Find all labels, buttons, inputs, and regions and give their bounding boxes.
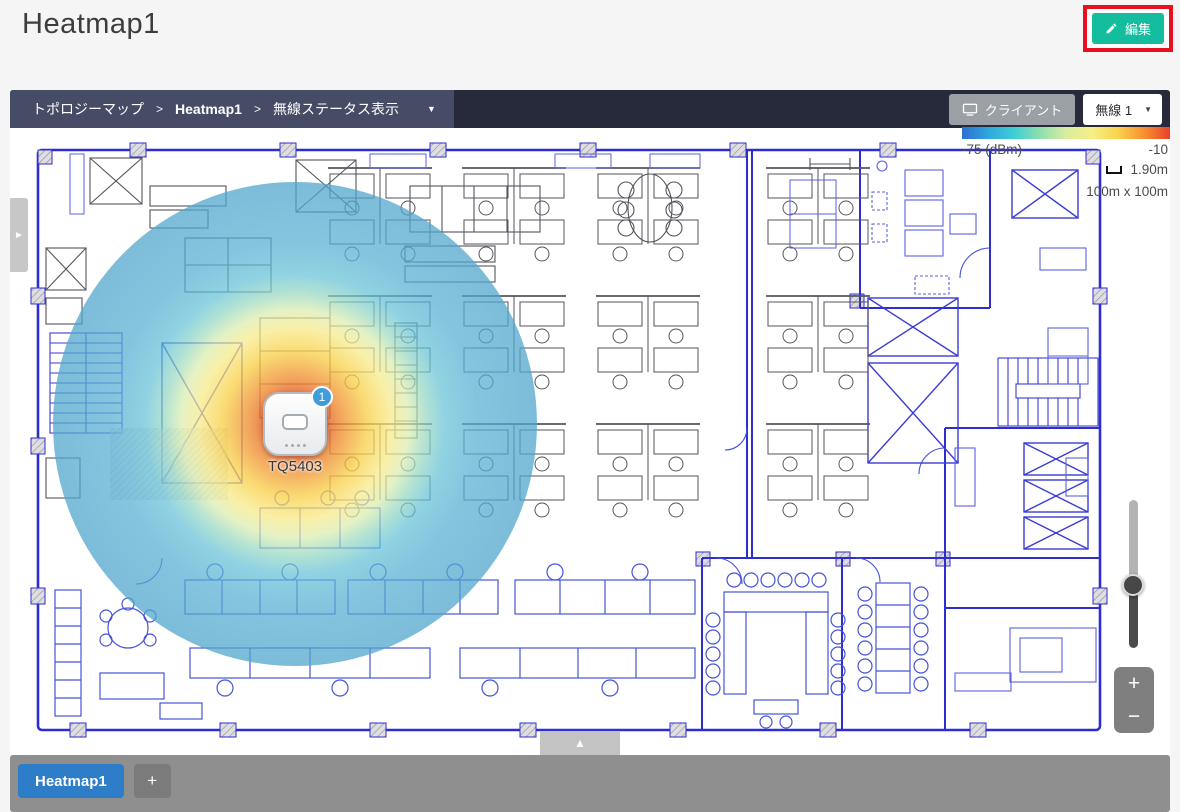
radio-select-value: 無線 1: [1095, 100, 1132, 119]
map-toolbar: トポロジーマップ > Heatmap1 > 無線ステータス表示 ▼ クライアント…: [10, 90, 1170, 128]
floorplan-canvas[interactable]: 1 TQ5403: [10, 128, 1170, 755]
zoom-slider-track-upper[interactable]: [1129, 500, 1138, 585]
map-size-label: 100m x 100m: [962, 184, 1170, 199]
floor-plan: [10, 128, 1170, 755]
chevron-right-icon: ►: [14, 230, 24, 241]
add-map-button[interactable]: +: [134, 764, 171, 798]
breadcrumb-topology-map[interactable]: トポロジーマップ: [32, 99, 144, 119]
signal-legend: -75 (dBm) -10 1.90m 100m x 100m: [962, 127, 1170, 199]
toolbar-right: クライアント 無線 1 ▼: [949, 94, 1162, 125]
access-point-label: TQ5403: [245, 458, 345, 475]
zoom-slider-thumb[interactable]: [1122, 574, 1144, 596]
bottom-expand-tab[interactable]: ▲: [540, 731, 620, 755]
chevron-down-icon[interactable]: ▼: [427, 104, 436, 114]
breadcrumb-wireless-status[interactable]: 無線ステータス表示: [273, 99, 399, 119]
breadcrumb: トポロジーマップ > Heatmap1 > 無線ステータス表示 ▼: [10, 90, 454, 128]
monitor-icon: [962, 103, 978, 116]
client-button[interactable]: クライアント: [949, 94, 1075, 125]
zoom-in-button[interactable]: +: [1114, 667, 1154, 700]
breadcrumb-heatmap1[interactable]: Heatmap1: [175, 101, 242, 117]
heatmap-panel: トポロジーマップ > Heatmap1 > 無線ステータス表示 ▼ クライアント…: [10, 90, 1170, 812]
edit-button-label: 編集: [1125, 19, 1151, 38]
access-point-screen: [282, 414, 308, 430]
edit-button-highlight: 編集: [1083, 5, 1173, 52]
radio-select-dropdown[interactable]: 無線 1 ▼: [1083, 94, 1162, 125]
legend-max-label: -10: [1148, 142, 1168, 157]
access-point-marker[interactable]: 1: [263, 392, 327, 456]
page-title: Heatmap1: [22, 8, 160, 41]
edit-button[interactable]: 編集: [1092, 13, 1164, 44]
legend-min-label: -75 (dBm): [962, 142, 1022, 157]
breadcrumb-separator: >: [156, 102, 163, 116]
tab-heatmap1[interactable]: Heatmap1: [18, 764, 124, 798]
map-tab-bar: Heatmap1 +: [10, 755, 1170, 812]
legend-gradient-bar: [962, 127, 1170, 139]
legend-scale-label: 1.90m: [1130, 162, 1168, 177]
scale-ruler-icon: [1106, 166, 1122, 174]
zoom-slider[interactable]: [1129, 500, 1138, 648]
pencil-icon: [1105, 22, 1118, 35]
chevron-up-icon: ▲: [574, 736, 586, 750]
chevron-down-icon: ▼: [1144, 105, 1152, 114]
client-count-badge: 1: [311, 386, 333, 408]
access-point-leds: [265, 444, 325, 447]
zoom-out-button[interactable]: −: [1114, 700, 1154, 733]
breadcrumb-separator: >: [254, 102, 261, 116]
zoom-button-group: + −: [1114, 667, 1154, 733]
sidebar-expand-handle[interactable]: ►: [10, 198, 28, 272]
client-button-label: クライアント: [985, 100, 1062, 119]
